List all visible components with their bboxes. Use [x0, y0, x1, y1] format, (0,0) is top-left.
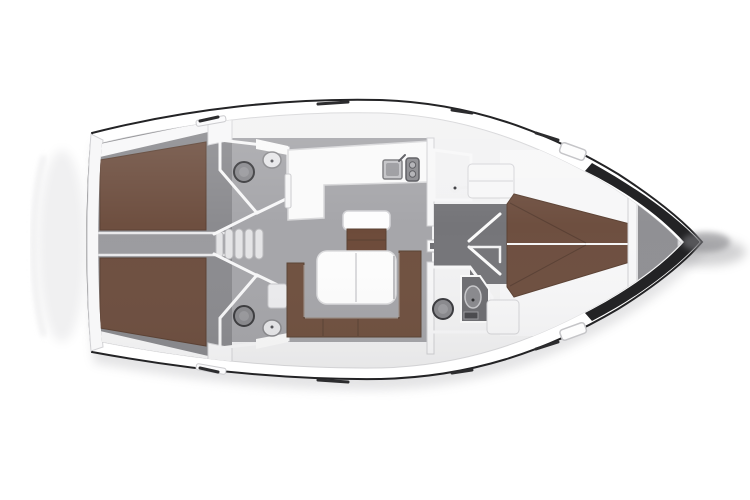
- light-sheen: [85, 90, 710, 390]
- yacht-floorplan: [0, 0, 750, 500]
- interior-rooms: [85, 90, 710, 390]
- floorplan-canvas: [0, 0, 750, 500]
- hull-window: [318, 102, 348, 104]
- stern-glow: [38, 150, 86, 342]
- bow-tip-fade: [682, 232, 730, 252]
- hull-window: [318, 380, 348, 382]
